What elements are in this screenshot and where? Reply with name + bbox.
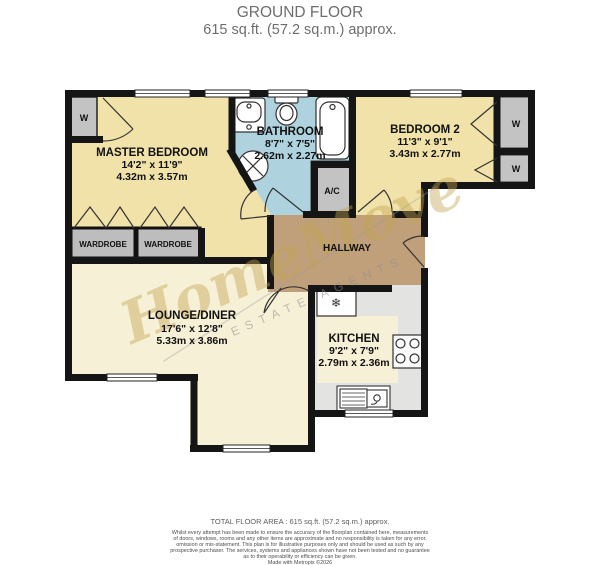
label-closet-w: W: [512, 164, 521, 174]
label-bedroom2: BEDROOM 2: [390, 124, 460, 136]
window: [268, 90, 308, 97]
disclaimer-line: Made with Metropix ©2026: [268, 559, 332, 565]
label-kitchen-imperial: 9'2" x 7'9": [329, 345, 379, 357]
room-lounge-lower: [190, 374, 312, 452]
label-master-bedroom-metric: 4.32m x 3.57m: [116, 171, 187, 183]
label-master-bedroom-imperial: 14'2" x 11'9": [121, 159, 182, 171]
label-lounge-imperial: 17'6" x 12'8": [161, 323, 223, 335]
label-wardrobe: WARDROBE: [144, 240, 192, 249]
label-wardrobe: WARDROBE: [79, 240, 127, 249]
window: [205, 90, 250, 97]
label-bedroom2-imperial: 11'3" x 9'1": [397, 136, 452, 148]
label-bathroom: BATHROOM: [257, 126, 324, 138]
label-bathroom-metric: 2.62m x 2.27m: [254, 150, 325, 162]
label-kitchen: KITCHEN: [328, 333, 379, 345]
label-master-bedroom: MASTER BEDROOM: [96, 147, 208, 159]
label-bedroom2-metric: 3.43m x 2.77m: [389, 148, 460, 160]
window: [223, 445, 270, 452]
window: [345, 410, 393, 417]
page-title: GROUND FLOOR: [237, 4, 364, 21]
floorplan-page: GROUND FLOOR 615 sq.ft. (57.2 sq.m.) app…: [0, 0, 600, 565]
label-bathroom-imperial: 8'7" x 7'5": [265, 138, 315, 150]
snowflake-icon: ❄: [331, 296, 341, 310]
toilet: [275, 95, 298, 125]
floorplan-canvas: GROUND FLOOR 615 sq.ft. (57.2 sq.m.) app…: [0, 0, 600, 565]
label-closet-w: W: [80, 113, 89, 123]
window: [135, 90, 190, 97]
label-closet-w: W: [512, 119, 521, 129]
window: [410, 90, 462, 97]
kitchen-sink: [337, 386, 390, 411]
label-ac: A/C: [324, 186, 340, 196]
label-lounge-metric: 5.33m x 3.86m: [156, 335, 227, 347]
label-hallway: HALLWAY: [323, 243, 371, 254]
page-subtitle: 615 sq.ft. (57.2 sq.m.) approx.: [203, 22, 396, 38]
hob: [393, 335, 423, 368]
total-floor-area: TOTAL FLOOR AREA : 615 sq.ft. (57.2 sq.m…: [210, 517, 389, 526]
label-kitchen-metric: 2.79m x 2.36m: [318, 357, 389, 369]
window: [107, 374, 157, 381]
footer: TOTAL FLOOR AREA : 615 sq.ft. (57.2 sq.m…: [170, 517, 429, 565]
label-lounge: LOUNGE/DINER: [148, 310, 237, 322]
